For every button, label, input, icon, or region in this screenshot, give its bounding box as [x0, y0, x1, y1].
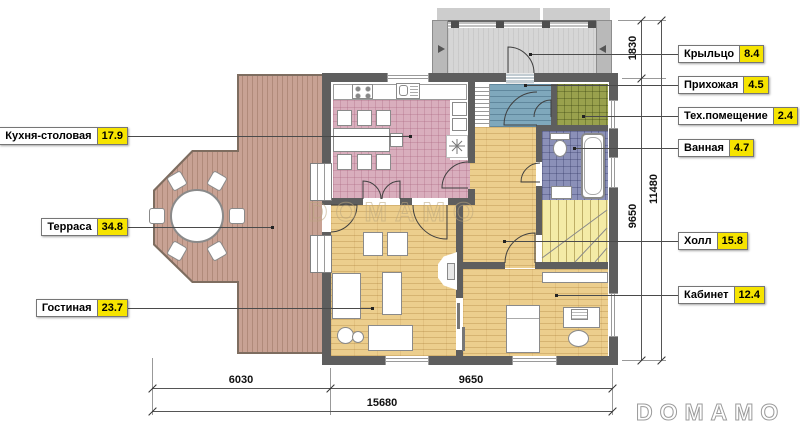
- armchair: [363, 232, 383, 256]
- extension-line: [622, 78, 666, 79]
- dining-chair: [376, 110, 391, 126]
- dining-chair: [357, 110, 372, 126]
- room-name: Ванная: [678, 139, 730, 157]
- window-bay: [310, 235, 332, 273]
- wall: [463, 262, 505, 269]
- leader-line: [530, 54, 678, 55]
- room-entry-hall: [490, 84, 551, 127]
- room-name: Холл: [678, 232, 718, 250]
- sink-drainer: [410, 86, 418, 96]
- dimension-value: 11480: [648, 164, 660, 214]
- room-label-kitchen-dining: Кухня-столовая 17.9: [0, 127, 128, 145]
- leader-line: [128, 136, 411, 137]
- fridge-symbol: [452, 102, 467, 116]
- room-label-hall: Холл 15.8: [678, 232, 748, 250]
- room-label-office: Кабинет 12.4: [678, 286, 765, 304]
- leader-dot: [271, 226, 274, 229]
- sink-bowl: [399, 85, 408, 96]
- leader-dot: [573, 147, 576, 150]
- room-name: Прихожая: [678, 76, 744, 94]
- armchair: [387, 232, 408, 256]
- dimension-line: [661, 20, 662, 360]
- dimension-value: 6030: [211, 374, 271, 386]
- leader-dot: [409, 135, 412, 138]
- dimension-value: 1830: [627, 28, 639, 68]
- room-label-bathroom: Ванная 4.7: [678, 139, 754, 157]
- window: [609, 157, 618, 188]
- toilet-bowl: [553, 140, 567, 157]
- room-label-entry-hall: Прихожая 4.5: [678, 76, 769, 94]
- dimension-line: [641, 20, 642, 360]
- leader-line: [525, 85, 678, 86]
- dining-table: [333, 128, 390, 152]
- sofa: [332, 273, 361, 319]
- room-tech: [557, 84, 608, 125]
- sofa: [368, 325, 413, 351]
- wall: [536, 125, 608, 131]
- room-area-badge: 23.7: [98, 299, 128, 317]
- entry-steps: [506, 74, 534, 83]
- room-label-tech: Тех.помещение 2.4: [678, 107, 798, 125]
- window: [387, 73, 429, 82]
- leader-line: [128, 227, 273, 228]
- wall: [536, 131, 542, 162]
- room-label-living: Гостиная 23.7: [36, 299, 128, 317]
- dimension-line: [152, 411, 612, 412]
- office-shelf: [542, 272, 608, 283]
- tv-screen: [447, 263, 455, 280]
- terrace-chair: [229, 208, 245, 224]
- room-name: Тех.помещение: [678, 107, 774, 125]
- room-area-badge: 4.5: [744, 76, 768, 94]
- room-name: Терраса: [41, 218, 97, 236]
- wall: [535, 262, 608, 269]
- desk-chair: [568, 330, 589, 347]
- sliding-door-panel: [457, 303, 460, 329]
- porch-step-arrow-left: [438, 45, 445, 53]
- room-label-terrace: Терраса 34.8: [41, 218, 128, 236]
- leader-dot: [555, 294, 558, 297]
- wall: [468, 82, 475, 163]
- window: [609, 293, 618, 337]
- window-bay: [310, 163, 332, 201]
- watermark: DOMAMO: [308, 197, 482, 228]
- room-area-badge: 17.9: [98, 127, 128, 145]
- room-name: Гостиная: [36, 299, 98, 317]
- window: [609, 100, 618, 129]
- dining-chair: [337, 110, 352, 126]
- room-name: Крыльцо: [678, 45, 740, 63]
- terrace-round-table: [170, 189, 224, 243]
- wall: [551, 84, 557, 125]
- leader-line: [574, 148, 682, 149]
- leader-line: [583, 116, 678, 117]
- wardrobe-line: [507, 318, 539, 319]
- floor-plan-page: DOMAMO Кухня-столовая 17.9 Терраса 34.8 …: [0, 0, 800, 442]
- bathtub-inner: [584, 137, 602, 195]
- dining-chair: [337, 154, 352, 170]
- room-area-badge: 8.4: [740, 45, 764, 63]
- room-area-badge: 15.8: [718, 232, 748, 250]
- porch-floor: [448, 28, 596, 74]
- dimension-value: 9650: [441, 374, 501, 386]
- room-name: Кабинет: [678, 286, 735, 304]
- leader-dot: [582, 115, 585, 118]
- dimension-value: 9650: [627, 196, 639, 236]
- room-label-porch: Крыльцо 8.4: [678, 45, 764, 63]
- wardrobe: [506, 305, 540, 353]
- leader-dot: [503, 240, 506, 243]
- floor-lamp: [352, 331, 364, 343]
- window: [385, 356, 429, 365]
- wall: [536, 200, 542, 235]
- brand-logo: DOMAMO: [636, 399, 785, 426]
- leader-dot: [371, 307, 374, 310]
- stove-symbol: [352, 84, 373, 99]
- extension-line: [612, 368, 613, 415]
- washbasin-symbol: [551, 186, 572, 199]
- toilet-tank: [550, 133, 570, 140]
- room-area-badge: 34.8: [98, 218, 128, 236]
- dining-chair: [357, 154, 372, 170]
- leader-line: [504, 241, 678, 242]
- leader-line: [128, 308, 373, 309]
- room-area-badge: 4.7: [730, 139, 754, 157]
- leader-dot: [529, 53, 532, 56]
- porch-roof-edge: [437, 8, 610, 20]
- dining-chair: [376, 154, 391, 170]
- wall: [536, 186, 542, 200]
- room-area-badge: 2.4: [774, 107, 798, 125]
- terrace-chair: [149, 208, 165, 224]
- sliding-door-panel: [462, 327, 465, 351]
- dimension-line: [152, 388, 612, 389]
- leader-dot: [524, 84, 527, 87]
- computer-monitor: [571, 309, 588, 320]
- room-name: Кухня-столовая: [0, 127, 98, 145]
- room-area-badge: 12.4: [735, 286, 765, 304]
- porch-step-arrow-right: [599, 45, 606, 53]
- coffee-table: [382, 272, 402, 315]
- leader-line: [556, 295, 678, 296]
- vent-box: [446, 135, 468, 158]
- extension-line: [330, 368, 331, 415]
- staircase: [542, 200, 608, 262]
- cabinet-symbol: [452, 118, 467, 131]
- window: [512, 356, 557, 365]
- porch-roof-gap: [540, 8, 543, 20]
- dimension-value: 15680: [352, 397, 412, 409]
- entry-closet: [473, 84, 490, 127]
